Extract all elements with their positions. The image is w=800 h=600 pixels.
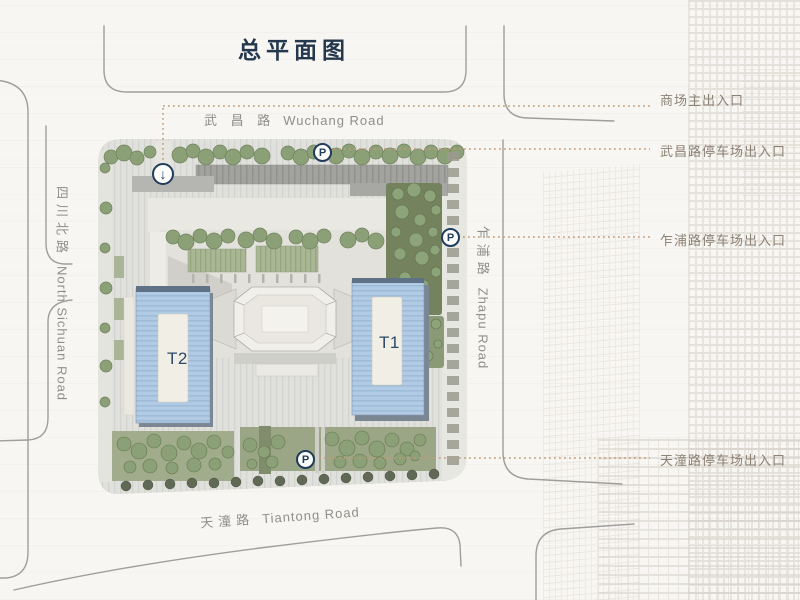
annotation-wuchang-parking-entrance: 武昌路停车场出入口 xyxy=(660,141,786,160)
parking-icon-zhapu: P xyxy=(441,228,460,247)
site-plan-block xyxy=(98,139,468,494)
annotation-tiantong-parking-entrance: 天潼路停车场出入口 xyxy=(660,450,786,469)
tower-t1-label: T1 xyxy=(379,333,400,353)
tower-t2-label: T2 xyxy=(167,349,188,369)
parking-icon-tiantong: P xyxy=(296,450,315,469)
annotation-zhapu-parking-entrance: 乍浦路停车场出入口 xyxy=(660,230,786,249)
annotation-mall-main-entrance: 商场主出入口 xyxy=(660,90,744,109)
entrance-arrow-icon: ↓ xyxy=(152,163,174,185)
page-title: 总平面图 xyxy=(238,31,350,65)
road-label-zhapu: 乍浦路Zhapu Road xyxy=(475,198,494,398)
road-label-wuchang: 武 昌 路Wuchang Road xyxy=(204,110,385,129)
parking-icon-wuchang: P xyxy=(313,143,332,162)
site-plan-page: 总平面图 武 昌 路Wuchang Road 四川北路North Sichuan… xyxy=(0,0,800,600)
road-label-north-sichuan: 四川北路North Sichuan Road xyxy=(54,164,73,424)
